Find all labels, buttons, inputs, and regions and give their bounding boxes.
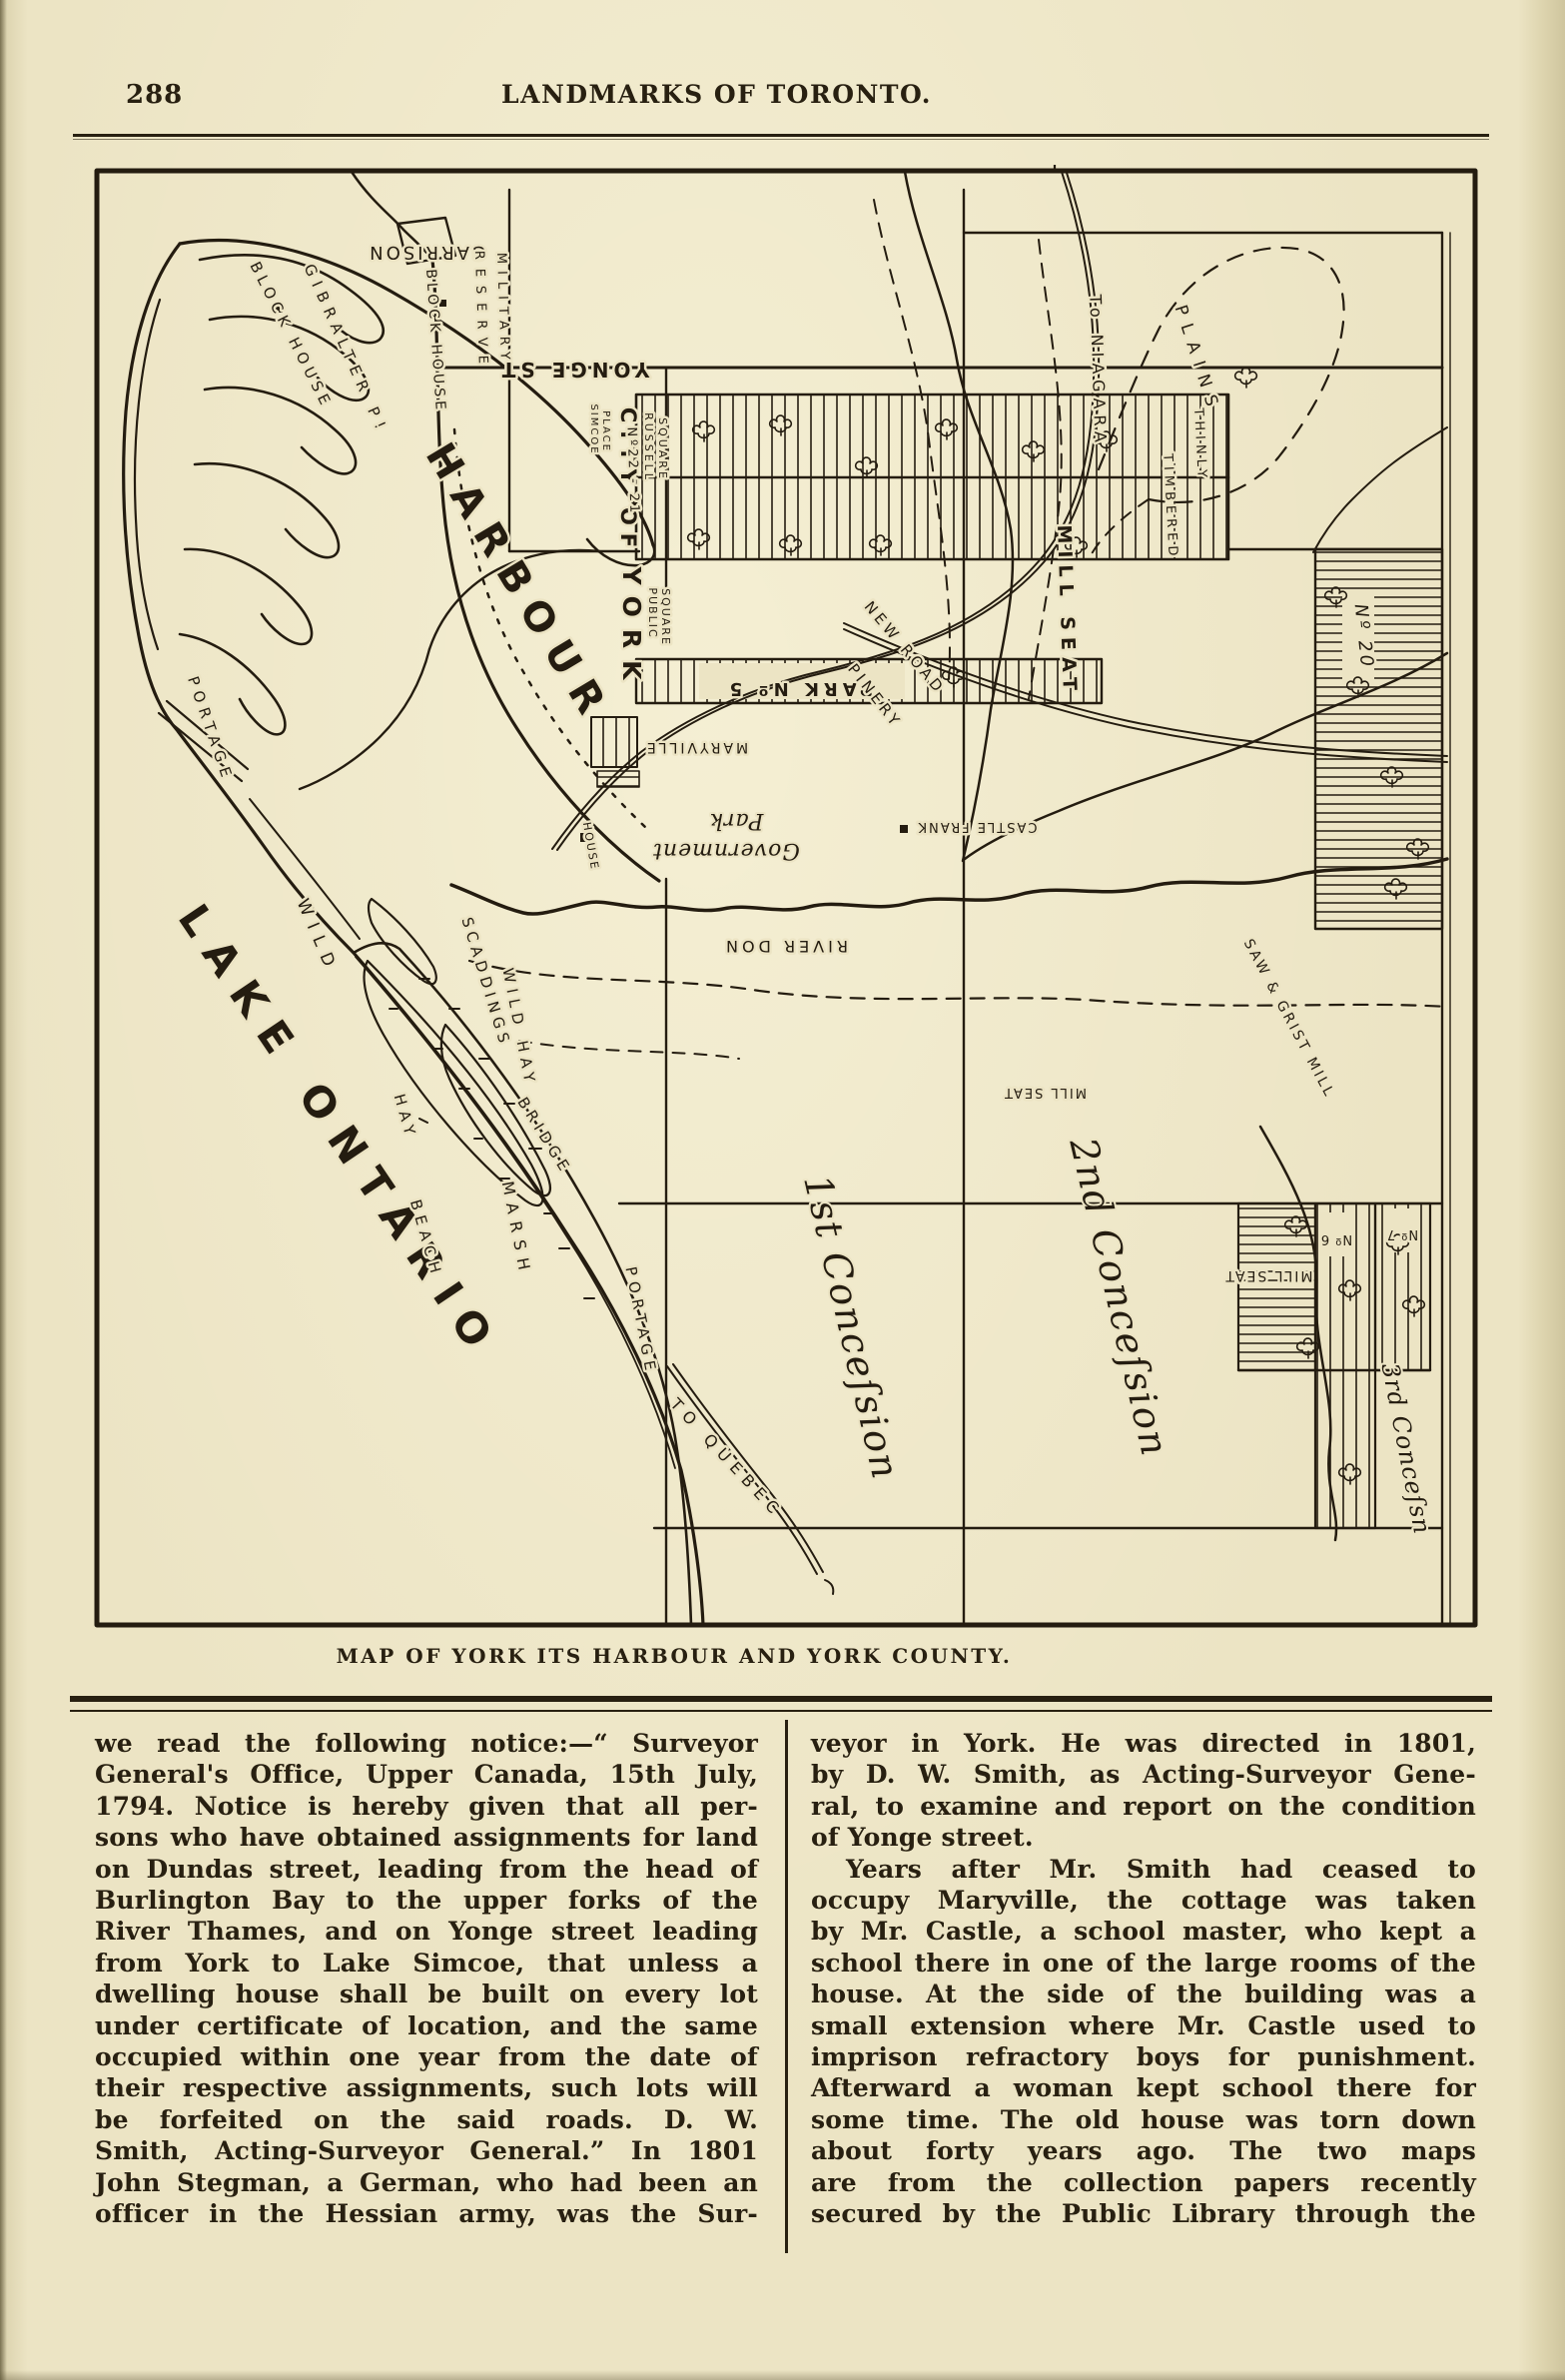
military-label: MILITARY — [493, 253, 512, 368]
map-caption: MAP OF YORK ITS HARBOUR AND YORK COUNTY. — [75, 1644, 1273, 1668]
public-label: PUBLIC — [646, 587, 659, 638]
simcoe-label: SIMCOE — [588, 403, 599, 454]
text-line: occupied within one year from the date o… — [95, 2041, 758, 2072]
text-line: by D. W. Smith, as Acting-Surveyor Gene- — [811, 1759, 1476, 1790]
text-line: are from the collection papers recently — [811, 2167, 1476, 2198]
text-line: on Dundas street, leading from the head … — [95, 1854, 758, 1885]
river-don-label: RIVER DON — [722, 937, 848, 956]
government-label: Government — [652, 838, 800, 863]
yonge-st-label: YONGE ST — [497, 358, 651, 382]
map-of-york: GARRISONBLOCK HOUSEGIBRALTER P!BLOCK HOU… — [88, 165, 1478, 1630]
garrison-label: GARRISON — [367, 242, 486, 263]
text-line: of Yonge street. — [811, 1822, 1476, 1853]
text-line: Burlington Bay to the upper forks of the — [95, 1885, 758, 1916]
bridge-label: BRIDGE — [513, 1094, 575, 1178]
mill-seat-don-label: MILL SEAT — [1003, 1085, 1087, 1100]
russell-label: RUSSELL — [642, 412, 655, 482]
text-line: dwelling house shall be built on every l… — [95, 1979, 758, 2009]
government-park-label: Park — [709, 808, 765, 833]
concession-1-label: 1st Conceſsion — [795, 1171, 908, 1484]
concession-3-label: 3rd Conceſsn — [1375, 1360, 1436, 1536]
marsh-label: MARSH — [498, 1180, 535, 1279]
text-line: officer in the Hessian army, was the Sur… — [95, 2198, 758, 2229]
column-divider — [785, 1720, 788, 2253]
text-line: be forfeited on the said roads. D. W. — [95, 2104, 758, 2135]
place-label: PLACE — [600, 410, 611, 452]
mill-seat-mirrored-label: MILL SEAT — [1223, 1267, 1312, 1283]
text-line: General's Office, Upper Canada, 15th Jul… — [95, 1759, 758, 1790]
text-line: John Stegman, a German, who had been an — [95, 2167, 758, 2198]
text-line: Afterward a woman kept school there for — [811, 2072, 1476, 2103]
left-column: we read the following notice:—“ Surveyor… — [95, 1728, 758, 2230]
text-line: we read the following notice:—“ Surveyor — [95, 1728, 758, 1759]
text-line: by Mr. Castle, a school master, who kept… — [811, 1916, 1476, 1947]
public-square-label: SQUARE — [659, 588, 672, 646]
text-line: about forty years ago. The two maps — [811, 2135, 1476, 2166]
saw-grist-mill-label: SAW & GRIST MILL — [1240, 937, 1338, 1102]
reserve-label: RESERVE — [471, 251, 490, 374]
lot-22-21-label: Nº22 - 21 — [623, 426, 641, 515]
text-line: Smith, Acting-Surveyor General.” In 1801 — [95, 2135, 758, 2166]
york-label: YORK — [617, 565, 646, 691]
maryville-label: MARYVILLE — [644, 739, 748, 755]
lot-7-label: Nº 7 — [1386, 1226, 1418, 1241]
roads — [552, 172, 1447, 1594]
text-line: 1794. Notice is hereby given that all pe… — [95, 1791, 758, 1822]
text-line: occupy Maryville, the cottage was taken — [811, 1885, 1476, 1916]
text-line: secured by the Public Library through th… — [811, 2198, 1476, 2229]
text-line: Years after Mr. Smith had ceased to — [811, 1854, 1476, 1885]
header-rule — [73, 134, 1489, 137]
text-line: River Thames, and on Yonge street leadin… — [95, 1916, 758, 1947]
castle-frank-label: CASTLE FRANK — [917, 819, 1038, 834]
city-blocks — [591, 395, 1442, 1528]
portage-upper-label: PORTAGE — [184, 674, 237, 785]
harbour-label: HARBOUR — [416, 435, 621, 734]
text-line: house. At the side of the building was a — [811, 1979, 1476, 2009]
park-no5-label: PARK Nº 5 — [725, 678, 874, 699]
portage-lower-label: PORTAGE — [621, 1265, 660, 1378]
scanned-book-page: 288 LANDMARKS OF TORONTO. — [0, 0, 1565, 2380]
text-line: ral, to examine and report on the condit… — [811, 1791, 1476, 1822]
text-line: under certificate of location, and the s… — [95, 2010, 758, 2041]
text-line: veyor in York. He was directed in 1801, — [811, 1728, 1476, 1759]
text-line: school there in one of the large rooms o… — [811, 1948, 1476, 1979]
hay-label: HAY — [391, 1092, 420, 1143]
text-line: their respective assignments, such lots … — [95, 2072, 758, 2103]
text-line: imprison refractory boys for punishment. — [811, 2041, 1476, 2072]
text-line: some time. The old house was torn down — [811, 2104, 1476, 2135]
text-line: small extension where Mr. Castle used to — [811, 2010, 1476, 2041]
block-house-shore-label: BLOCK HOUSE — [422, 269, 448, 414]
lot-6-label: Nº 6 — [1320, 1231, 1352, 1246]
header-title: LANDMARKS OF TORONTO. — [501, 80, 932, 109]
russell-square-label: SQUARE — [656, 417, 669, 481]
concession-2-label: 2nd Conceſsion — [1061, 1133, 1177, 1461]
wild-label: WILD — [293, 896, 343, 978]
text-line: sons who have obtained assignments for l… — [95, 1822, 758, 1853]
text-line: from York to Lake Simcoe, that unless a — [95, 1948, 758, 1979]
article-divider-rule — [70, 1696, 1492, 1712]
right-column: veyor in York. He was directed in 1801,b… — [811, 1728, 1476, 2230]
page-number: 288 — [126, 80, 183, 110]
